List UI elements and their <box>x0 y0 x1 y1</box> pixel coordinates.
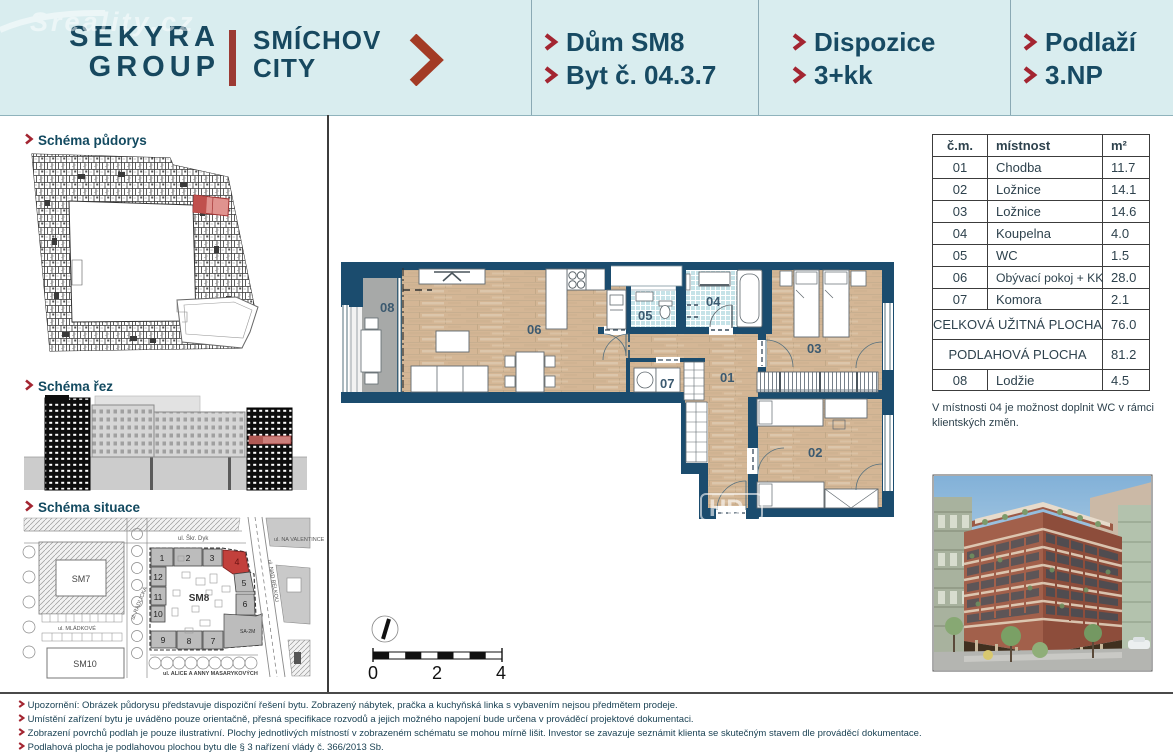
svg-text:08: 08 <box>380 300 394 315</box>
svg-text:4: 4 <box>496 663 506 683</box>
svg-text:ul. ALICE A ANNY MASARYKOVÝCH: ul. ALICE A ANNY MASARYKOVÝCH <box>163 670 258 677</box>
svg-text:02: 02 <box>808 445 822 460</box>
svg-text:8: 8 <box>187 636 192 646</box>
svg-text:2: 2 <box>186 553 191 563</box>
svg-text:04: 04 <box>706 294 721 309</box>
svg-text:SM10: SM10 <box>73 659 97 669</box>
svg-text:SM8: SM8 <box>189 593 210 604</box>
svg-text:ul. NA VALENTINCE: ul. NA VALENTINCE <box>274 537 325 543</box>
svg-text:SA-2M: SA-2M <box>240 629 255 635</box>
svg-text:11: 11 <box>154 592 163 602</box>
svg-text:1: 1 <box>160 553 165 563</box>
svg-text:05: 05 <box>638 308 652 323</box>
svg-text:0: 0 <box>368 663 378 683</box>
svg-text:12: 12 <box>153 572 163 582</box>
svg-text:4: 4 <box>234 557 239 567</box>
svg-text:5: 5 <box>242 578 247 588</box>
svg-text:9: 9 <box>161 635 166 645</box>
svg-text:06: 06 <box>527 322 541 337</box>
svg-text:07: 07 <box>660 376 674 391</box>
svg-text:HD: HD <box>709 495 744 522</box>
svg-text:SM7: SM7 <box>72 574 91 584</box>
svg-text:3: 3 <box>210 553 215 563</box>
svg-text:ul. Škr. Dyk: ul. Škr. Dyk <box>178 535 209 542</box>
svg-text:03: 03 <box>807 341 821 356</box>
svg-text:7: 7 <box>211 636 216 646</box>
svg-text:01: 01 <box>720 370 734 385</box>
svg-text:6: 6 <box>243 599 248 609</box>
svg-text:ul. RADLICKÁ: ul. RADLICKÁ <box>129 586 149 621</box>
svg-text:10: 10 <box>153 609 163 619</box>
svg-text:ul. MLÁDKOVÉ: ul. MLÁDKOVÉ <box>58 625 96 632</box>
svg-text:2: 2 <box>432 663 442 683</box>
